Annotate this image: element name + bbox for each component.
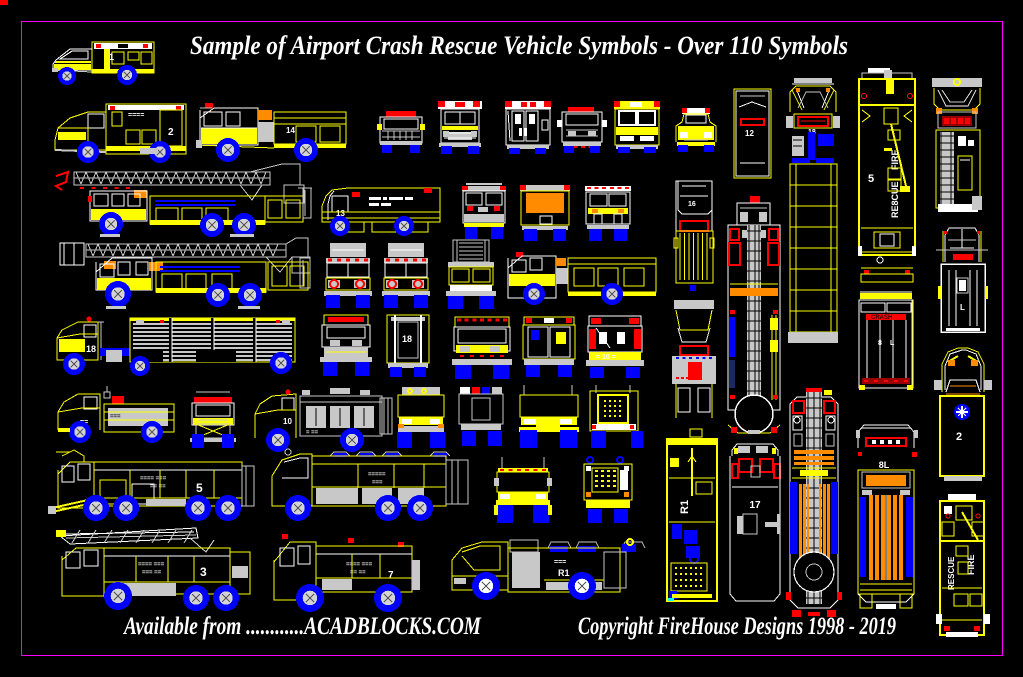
svg-text:RESCUE: RESCUE: [947, 556, 956, 590]
svg-text:==== ===: ==== ===: [140, 476, 167, 482]
svg-text:R1: R1: [679, 500, 691, 514]
svg-text:FIRE: FIRE: [890, 149, 900, 170]
svg-text:Copyright FireHouse Designs 19: Copyright FireHouse Designs 1998 - 2019: [578, 613, 896, 640]
svg-text:Sample of Airport Crash Rescue: Sample of Airport Crash Rescue Vehicle S…: [190, 31, 848, 60]
svg-text:18: 18: [86, 344, 96, 354]
svg-text:=== ==: === ==: [142, 570, 162, 576]
svg-text:5: 5: [868, 173, 874, 185]
svg-text:3: 3: [200, 565, 207, 579]
svg-text:18: 18: [402, 334, 412, 344]
svg-text:==== ===: ==== ===: [346, 562, 373, 568]
svg-text:2: 2: [168, 127, 174, 138]
svg-text:===: ===: [372, 480, 383, 486]
svg-text:R1: R1: [558, 568, 570, 578]
svg-text:7: 7: [388, 570, 394, 581]
svg-text:L: L: [890, 340, 895, 347]
svg-text:CRASH: CRASH: [871, 315, 892, 321]
svg-text:12: 12: [745, 129, 754, 138]
svg-text:8: 8: [878, 340, 882, 347]
svg-text:L: L: [960, 303, 965, 312]
svg-text:= ==: = ==: [306, 430, 319, 436]
svg-text:===: ===: [110, 414, 121, 420]
svg-text:10: 10: [283, 417, 292, 426]
svg-text:=====: =====: [368, 472, 386, 478]
svg-text:16: 16: [688, 201, 696, 208]
svg-text:==== ===: ==== ===: [138, 562, 165, 568]
svg-text:1: 1: [109, 52, 114, 62]
svg-text:====: ====: [128, 112, 144, 119]
svg-text:RE8CUE: RE8CUE: [890, 181, 900, 218]
svg-text:5: 5: [196, 481, 203, 495]
svg-text:===: ===: [554, 559, 566, 566]
svg-text:= 10 =: = 10 =: [596, 354, 616, 361]
svg-text:8L: 8L: [879, 460, 890, 470]
svg-text:Available from ............ACA: Available from ............ACADBLOCKS.CO…: [122, 613, 481, 640]
svg-text:2: 2: [956, 431, 962, 443]
svg-text:14: 14: [286, 126, 295, 135]
svg-text:== ==: == ==: [150, 484, 166, 490]
svg-text:17: 17: [749, 500, 761, 511]
